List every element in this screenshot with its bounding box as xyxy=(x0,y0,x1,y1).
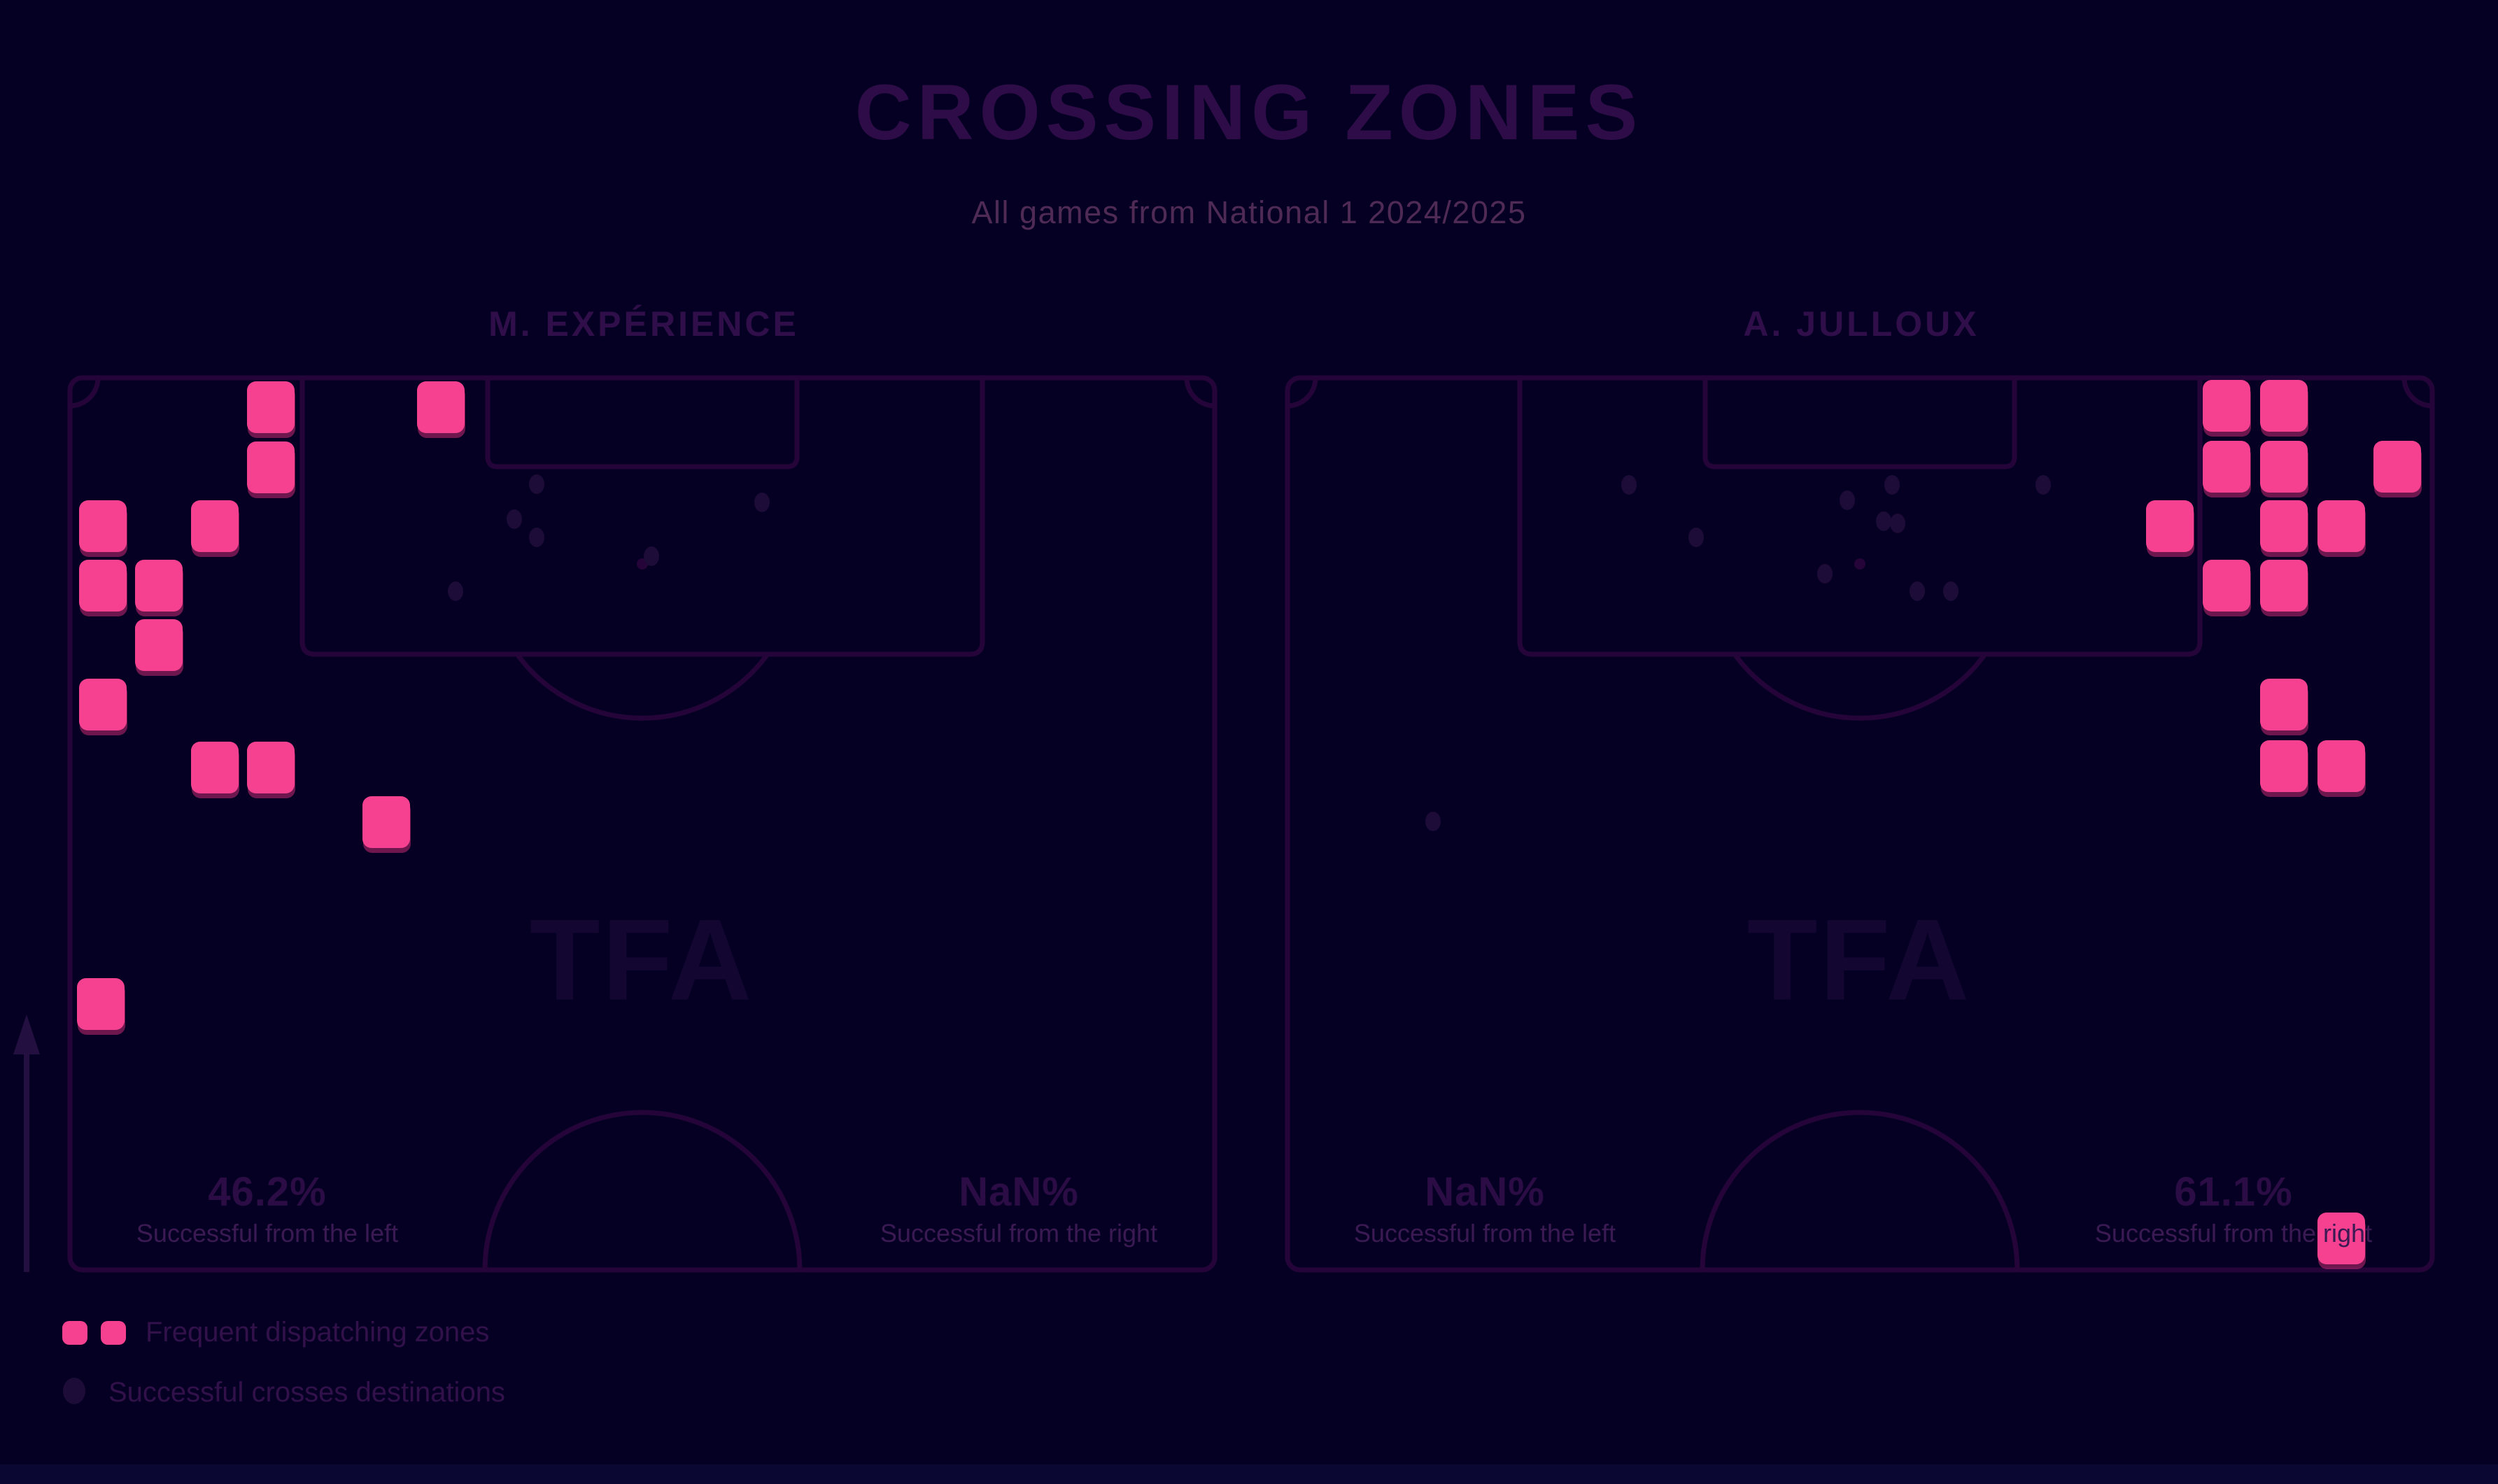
dispatch-zone-square xyxy=(79,500,127,552)
cross-destination-dot xyxy=(1943,581,1959,601)
cross-destination-dot xyxy=(644,546,659,566)
right-pitch-dispatch-zones xyxy=(2146,380,2422,1269)
dispatch-zone-square xyxy=(79,560,127,612)
dispatch-zone-square xyxy=(2260,740,2308,792)
attack-direction-arrow-icon xyxy=(13,1015,40,1272)
dispatch-zone-square xyxy=(79,679,127,730)
stat-label-right-pitch-right: Successful from the right xyxy=(2095,1219,2372,1248)
cross-destination-dot xyxy=(1621,475,1637,495)
dispatch-zone-square xyxy=(2260,560,2308,612)
stat-value-left-pitch-right: NaN% xyxy=(959,1168,1079,1215)
dispatch-zone-square xyxy=(247,441,295,493)
player-name-right: A. JULLOUX xyxy=(1743,304,1979,344)
left-pitch-lines xyxy=(70,378,1215,1270)
cross-destination-dot xyxy=(1890,514,1905,533)
dispatch-zone-square xyxy=(2317,740,2365,792)
cross-destination-dot xyxy=(529,528,544,547)
stat-label-right-pitch-left: Successful from the left xyxy=(1354,1219,1616,1248)
cross-destination-dot xyxy=(529,474,544,494)
crossing-zones-infographic: CROSSING ZONES All games from National 1… xyxy=(0,0,2498,1484)
legend-destinations-label: Successful crosses destinations xyxy=(108,1377,505,1408)
destination-marker-icon xyxy=(63,1378,85,1404)
dispatch-zone-square xyxy=(247,381,295,433)
dispatch-zone-square xyxy=(77,978,125,1030)
footer-band xyxy=(0,1464,2498,1484)
dispatch-zone-square xyxy=(247,742,295,793)
dispatch-zone-square xyxy=(362,796,410,848)
player-name-left: M. EXPÉRIENCE xyxy=(488,304,799,344)
stat-label-left-pitch-right: Successful from the right xyxy=(880,1219,1157,1248)
cross-destination-dot xyxy=(1425,812,1441,831)
dispatch-zone-square xyxy=(2260,500,2308,552)
left-pitch-cross-destinations xyxy=(448,474,770,601)
zone-marker-icon xyxy=(62,1321,87,1345)
dispatch-zone-square xyxy=(2260,679,2308,730)
stat-value-right-pitch-right: 61.1% xyxy=(2174,1168,2292,1215)
stat-value-left-pitch-left: 46.2% xyxy=(208,1168,326,1215)
page-title: CROSSING ZONES xyxy=(855,67,1643,157)
cross-destination-dot xyxy=(1817,564,1833,584)
legend-zones-label: Frequent dispatching zones xyxy=(146,1317,489,1348)
cross-destination-dot xyxy=(507,509,522,529)
dispatch-zone-square xyxy=(2203,560,2250,612)
dispatch-zone-square xyxy=(2317,500,2365,552)
stat-value-right-pitch-left: NaN% xyxy=(1425,1168,1545,1215)
dispatch-zone-square xyxy=(135,619,183,671)
dispatch-zone-square xyxy=(2260,441,2308,493)
cross-destination-dot xyxy=(1910,581,1925,601)
stat-label-left-pitch-left: Successful from the left xyxy=(136,1219,398,1248)
dispatch-zone-square xyxy=(191,742,239,793)
dispatch-zone-square xyxy=(2260,380,2308,432)
dispatch-zone-square xyxy=(2203,441,2250,493)
cross-destination-dot xyxy=(448,581,463,601)
tfa-watermark-right: TFA xyxy=(1747,894,1972,1026)
tfa-watermark-left: TFA xyxy=(530,894,754,1026)
page-subtitle: All games from National 1 2024/2025 xyxy=(972,195,1527,231)
cross-destination-dot xyxy=(1688,528,1704,547)
dispatch-zone-square xyxy=(2373,441,2421,493)
cross-destination-dot xyxy=(1876,511,1891,531)
dispatch-zone-square xyxy=(135,560,183,612)
dispatch-zone-square xyxy=(191,500,239,552)
cross-destination-dot xyxy=(2035,475,2051,495)
dispatch-zone-square xyxy=(2146,500,2194,552)
cross-destination-dot xyxy=(1884,475,1900,495)
zone-marker-icon xyxy=(101,1321,126,1345)
cross-destination-dot xyxy=(754,493,770,512)
left-pitch-dispatch-zones xyxy=(77,381,465,1035)
cross-destination-dot xyxy=(1840,490,1855,510)
dispatch-zone-square xyxy=(417,381,465,433)
dispatch-zone-square xyxy=(2203,380,2250,432)
